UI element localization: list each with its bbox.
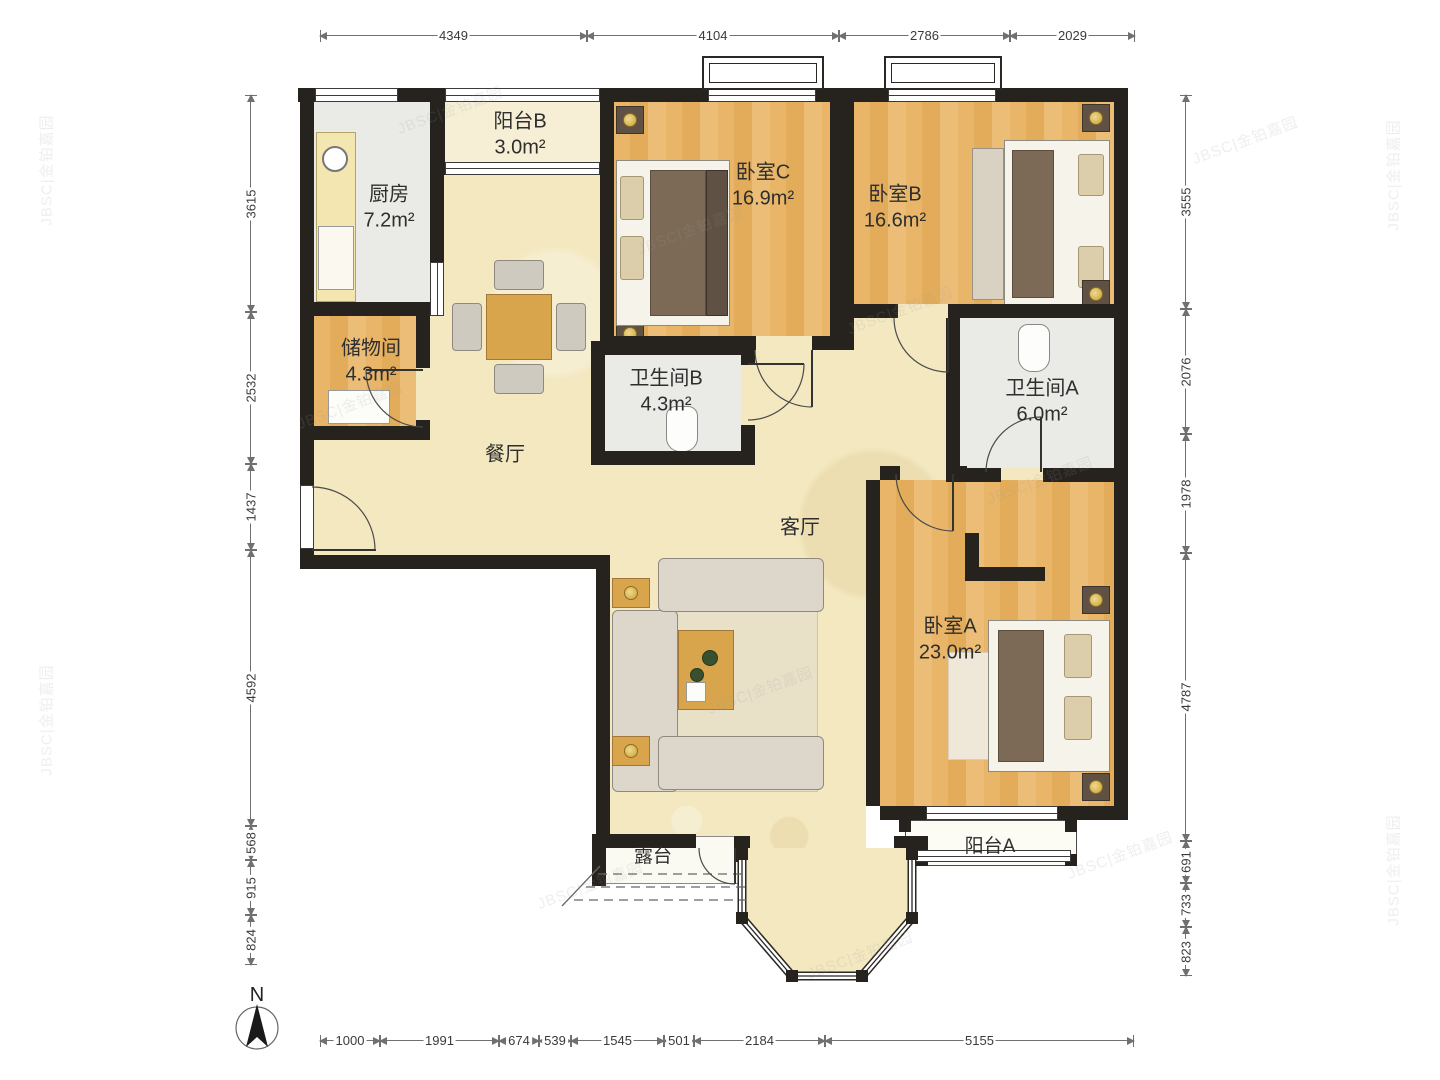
wall (600, 88, 614, 350)
wall (591, 341, 755, 355)
dimension-label: 3555 (1180, 186, 1193, 219)
dimension-arrow (1182, 840, 1190, 848)
room-label-balcony-b: 阳台B 3.0m² (493, 110, 546, 161)
wall (300, 426, 430, 440)
room-name: 卫生间A (1005, 377, 1078, 402)
wall (899, 854, 911, 866)
bed-blanket (998, 630, 1044, 762)
dimension-label: 1545 (601, 1034, 634, 1047)
bedroom-c-window (708, 88, 816, 102)
dimension-segment-bottom: 674 (499, 1040, 539, 1041)
bed-blanket (650, 170, 706, 316)
dining-chair (494, 260, 544, 290)
room-area: 16.9m² (732, 187, 794, 212)
bed-pillow (620, 176, 644, 220)
room-label-terrace: 露台 (634, 845, 672, 869)
dimension-label: 824 (245, 927, 258, 953)
dimension-segment-bottom: 539 (539, 1040, 571, 1041)
dimension-label: 2786 (908, 29, 941, 42)
dimension-label: 1000 (334, 1034, 367, 1047)
wall (880, 806, 926, 820)
room-name: 餐厅 (485, 443, 525, 468)
decor-knob (623, 113, 637, 127)
sofa-small (658, 736, 824, 790)
dimension-arrow (319, 32, 327, 40)
room-label-bedroom-b: 卧室B 16.6m² (864, 183, 926, 234)
dimension-segment-left: 4592 (250, 550, 251, 826)
room-label-storage: 储物间 4.3m² (341, 337, 401, 388)
wall (430, 102, 444, 262)
wall (816, 88, 888, 102)
dimension-segment-left: 568 (250, 826, 251, 860)
dimension-label: 823 (1180, 939, 1193, 965)
kitchen-sink (322, 146, 348, 172)
bed-pillow (1064, 696, 1092, 740)
room-label-bedroom-a: 卧室A 23.0m² (919, 615, 981, 666)
dimension-label: 4787 (1180, 681, 1193, 714)
dimension-arrow (247, 549, 255, 557)
dimension-label: 568 (245, 830, 258, 856)
dimension-label: 733 (1180, 892, 1193, 918)
sofa-small (658, 558, 824, 612)
dimension-segment-right: 823 (1185, 927, 1186, 976)
dimension-arrow (570, 1037, 578, 1045)
dimension-label: 2184 (743, 1034, 776, 1047)
dimension-segment-bottom: 2184 (694, 1040, 825, 1041)
dimension-label: 1978 (1180, 477, 1193, 510)
floorplan-page: 厨房 7.2m² 阳台B 3.0m² 卧室C 16.9m² 卧室B 16.6m²… (0, 0, 1440, 1080)
dimension-segment-left: 1437 (250, 464, 251, 550)
dimension-arrow (824, 1037, 832, 1045)
wall (880, 466, 900, 480)
room-area: 4.3m² (640, 393, 691, 418)
wall (741, 355, 755, 365)
room-area: 4.3m² (345, 363, 396, 388)
wall (600, 88, 708, 102)
bedroom-b-protruding-window (884, 56, 1002, 90)
wall (866, 480, 880, 806)
dimension-label: 1991 (423, 1034, 456, 1047)
dimension-arrow (1128, 32, 1136, 40)
dimension-label: 539 (542, 1034, 568, 1047)
dimension-arrow (498, 1037, 506, 1045)
dimension-segment-top: 2786 (839, 35, 1010, 36)
room-area: 6.0m² (1016, 403, 1067, 428)
balcony-b-door-window (445, 162, 600, 175)
dimension-arrow (1182, 926, 1190, 934)
dimension-segment-left: 2532 (250, 312, 251, 464)
dimension-segment-left: 915 (250, 860, 251, 915)
dimension-segment-right: 3555 (1185, 95, 1186, 309)
dimension-segment-top: 4349 (320, 35, 587, 36)
wall (416, 316, 430, 368)
wall (830, 102, 854, 350)
dimension-label: 3615 (245, 187, 258, 220)
dimension-arrow (1182, 308, 1190, 316)
dimension-label: 1437 (245, 491, 258, 524)
bed-blanket (1012, 150, 1054, 298)
bed-pillow (1078, 154, 1104, 196)
dimension-arrow (379, 1037, 387, 1045)
dimension-segment-right: 4787 (1185, 553, 1186, 841)
wall (1058, 806, 1128, 820)
dimension-arrow (247, 311, 255, 319)
room-label-living: 客厅 (780, 516, 820, 541)
wall (596, 569, 610, 840)
room-area: 3.0m² (494, 136, 545, 161)
dimension-label: 5155 (963, 1034, 996, 1047)
dimension-arrow (247, 463, 255, 471)
dimension-label: 2076 (1180, 355, 1193, 388)
bedroom-b-window (888, 88, 996, 102)
dimension-segment-bottom: 501 (664, 1040, 694, 1041)
dimension-arrow (1127, 1037, 1135, 1045)
wall (965, 567, 1045, 581)
room-name: 卧室C (736, 161, 790, 186)
dimension-arrow (247, 958, 255, 966)
room-name: 卧室A (923, 615, 976, 640)
dimension-arrow (1182, 433, 1190, 441)
bedroom-c-protruding-window (702, 56, 824, 90)
dimension-label: 2029 (1056, 29, 1089, 42)
dining-chair (494, 364, 544, 394)
dimension-label: 501 (666, 1034, 692, 1047)
dimension-label: 4592 (245, 672, 258, 705)
dimension-segment-top: 4104 (587, 35, 839, 36)
dimension-label: 4104 (697, 29, 730, 42)
plant (702, 650, 718, 666)
floorplan-canvas (0, 0, 1440, 1080)
wall (1065, 820, 1077, 832)
room-label-bedroom-c: 卧室C 16.9m² (732, 161, 794, 212)
wall (1114, 88, 1128, 820)
dimension-arrow (1182, 882, 1190, 890)
kitchen-door-opening (430, 262, 444, 316)
room-label-dining: 餐厅 (485, 443, 525, 468)
dimension-arrow (1182, 969, 1190, 977)
dimension-segment-bottom: 1991 (380, 1040, 499, 1041)
bedroom-b-wardrobe (972, 148, 1004, 300)
room-name: 客厅 (780, 516, 820, 541)
wall (300, 302, 444, 316)
wall (948, 304, 1128, 318)
room-area: 23.0m² (919, 641, 981, 666)
dimension-arrow (247, 914, 255, 922)
room-area: 16.6m² (864, 209, 926, 234)
balcony-b-window (445, 88, 600, 102)
dimension-segment-bottom: 5155 (825, 1040, 1134, 1041)
dining-table (486, 294, 552, 360)
wall (398, 88, 445, 102)
dimension-label: 2532 (245, 372, 258, 405)
wall (1043, 468, 1114, 482)
wall (300, 555, 610, 569)
entry-opening (300, 485, 314, 549)
room-name: 储物间 (341, 337, 401, 362)
decor-knob (1089, 593, 1103, 607)
dimension-label: 915 (245, 875, 258, 901)
dining-chair (556, 303, 586, 351)
outside-area (596, 886, 748, 1080)
wall (996, 88, 1128, 102)
dimension-arrow (247, 859, 255, 867)
dimension-segment-top: 2029 (1010, 35, 1135, 36)
decor-knob (624, 744, 638, 758)
wall (854, 304, 898, 318)
bed-pillow (620, 236, 644, 280)
wall (946, 318, 960, 482)
bedroom-c-wardrobe (706, 170, 728, 316)
dimension-arrow (247, 94, 255, 102)
room-name: 卧室B (868, 183, 921, 208)
decor-knob (624, 586, 638, 600)
room-label-bathroom-b: 卫生间B 4.3m² (629, 367, 702, 418)
room-area: 7.2m² (363, 209, 414, 234)
wall (812, 336, 830, 350)
wall (953, 466, 967, 482)
wall (734, 836, 750, 862)
dimension-segment-right: 691 (1185, 841, 1186, 883)
dimension-segment-right: 733 (1185, 883, 1186, 927)
dimension-segment-bottom: 1000 (320, 1040, 380, 1041)
tray (686, 682, 706, 702)
dimension-segment-bottom: 1545 (571, 1040, 664, 1041)
dimension-segment-right: 2076 (1185, 309, 1186, 434)
dimension-label: 674 (506, 1034, 532, 1047)
wall (591, 355, 605, 465)
storage-cabinet (328, 390, 390, 424)
toilet (1018, 324, 1050, 372)
dimension-arrow (586, 32, 594, 40)
decor-knob (1089, 780, 1103, 794)
plant (690, 668, 704, 682)
dimension-arrow (1009, 32, 1017, 40)
dining-chair (452, 303, 482, 351)
decor-knob (1089, 287, 1103, 301)
wall (591, 451, 755, 465)
decor-knob (1089, 111, 1103, 125)
kitchen-stove (318, 226, 354, 290)
outside-area (300, 569, 596, 1080)
room-name: 露台 (634, 845, 672, 869)
kitchen-window (315, 88, 398, 102)
dimension-arrow (693, 1037, 701, 1045)
room-name: 卫生间B (629, 367, 702, 392)
dimension-arrow (1182, 552, 1190, 560)
dimension-segment-left: 3615 (250, 95, 251, 312)
dimension-segment-left: 824 (250, 915, 251, 965)
room-name: 阳台B (493, 110, 546, 135)
dimension-label: 4349 (437, 29, 470, 42)
room-name: 厨房 (369, 183, 409, 208)
room-label-kitchen: 厨房 7.2m² (363, 183, 414, 234)
dimension-label: 691 (1180, 849, 1193, 875)
balcony-a-door-window (926, 806, 1058, 820)
room-label-bathroom-a: 卫生间A 6.0m² (1005, 377, 1078, 428)
room-name: 阳台A (965, 835, 1016, 859)
dimension-arrow (838, 32, 846, 40)
dimension-arrow (1182, 94, 1190, 102)
wall (899, 820, 911, 832)
dimension-segment-right: 1978 (1185, 434, 1186, 553)
bed-pillow (1064, 634, 1092, 678)
dimension-arrow (319, 1037, 327, 1045)
room-label-balcony-a: 阳台A (965, 835, 1016, 859)
